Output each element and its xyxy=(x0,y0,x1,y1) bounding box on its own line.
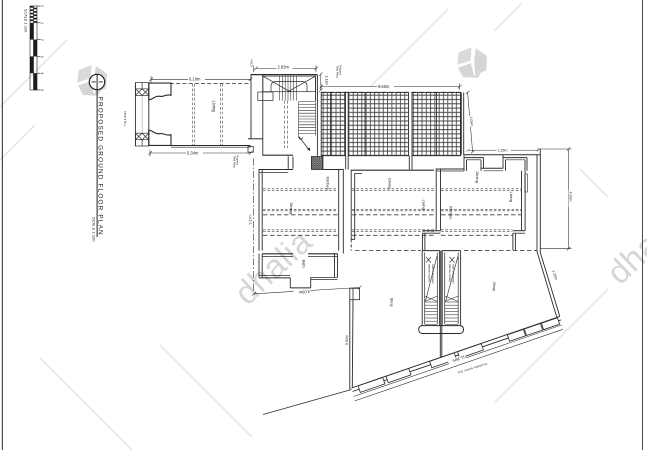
svg-text:2.83m: 2.83m xyxy=(278,65,290,70)
svg-text:1.04m: 1.04m xyxy=(469,116,474,126)
svg-text:1.11m: 1.11m xyxy=(325,76,329,86)
svg-text:Kitchen: Kitchen xyxy=(326,177,331,190)
svg-text:SCALE 1:100: SCALE 1:100 xyxy=(24,9,28,32)
svg-text:4: 4 xyxy=(40,73,44,75)
svg-text:Third Party: Third Party xyxy=(336,66,339,79)
svg-text:Third Party: Third Party xyxy=(233,156,236,169)
svg-text:Kitchen: Kitchen xyxy=(449,206,454,219)
svg-text:5: 5 xyxy=(40,89,44,91)
svg-text:5.92m: 5.92m xyxy=(345,335,349,345)
svg-text:3: 3 xyxy=(40,56,44,58)
svg-text:PROPOSED GROUND FLOOR PLAN: PROPOSED GROUND FLOOR PLAN xyxy=(97,97,104,236)
svg-text:SCALE 1:100: SCALE 1:100 xyxy=(91,217,96,242)
svg-text:4.02m: 4.02m xyxy=(568,192,572,202)
svg-text:6.10m: 6.10m xyxy=(189,77,201,82)
svg-text:1.26m: 1.26m xyxy=(498,148,508,152)
svg-text:2: 2 xyxy=(40,39,44,41)
svg-text:5.34m: 5.34m xyxy=(187,151,199,156)
svg-text:Dining: Dining xyxy=(475,172,480,183)
svg-text:staircase leading: staircase leading xyxy=(448,264,451,283)
svg-text:4.00m: 4.00m xyxy=(298,289,310,295)
svg-text:9.60m: 9.60m xyxy=(378,84,390,89)
svg-text:3.17m: 3.17m xyxy=(248,215,252,225)
svg-text:Living: Living xyxy=(422,200,427,210)
svg-text:staircase leading: staircase leading xyxy=(428,264,431,283)
svg-text:Triq il-Kbira: Triq il-Kbira xyxy=(123,110,127,126)
svg-text:Bath: Bath xyxy=(302,260,307,268)
svg-text:Dining: Dining xyxy=(289,203,294,214)
svg-text:Dining: Dining xyxy=(388,178,393,189)
svg-text:Living: Living xyxy=(212,101,217,113)
svg-text:Living: Living xyxy=(509,192,514,202)
svg-text:1: 1 xyxy=(40,22,44,24)
svg-text:Property: Property xyxy=(236,156,239,166)
svg-text:down to basement: down to basement xyxy=(452,264,455,284)
svg-text:Property: Property xyxy=(339,66,342,76)
svg-text:down to basement: down to basement xyxy=(431,264,434,284)
svg-text:Shop: Shop xyxy=(390,298,395,308)
svg-text:Shop: Shop xyxy=(492,282,497,292)
svg-text:0: 0 xyxy=(40,5,44,7)
svg-text:0.30m: 0.30m xyxy=(250,59,254,67)
